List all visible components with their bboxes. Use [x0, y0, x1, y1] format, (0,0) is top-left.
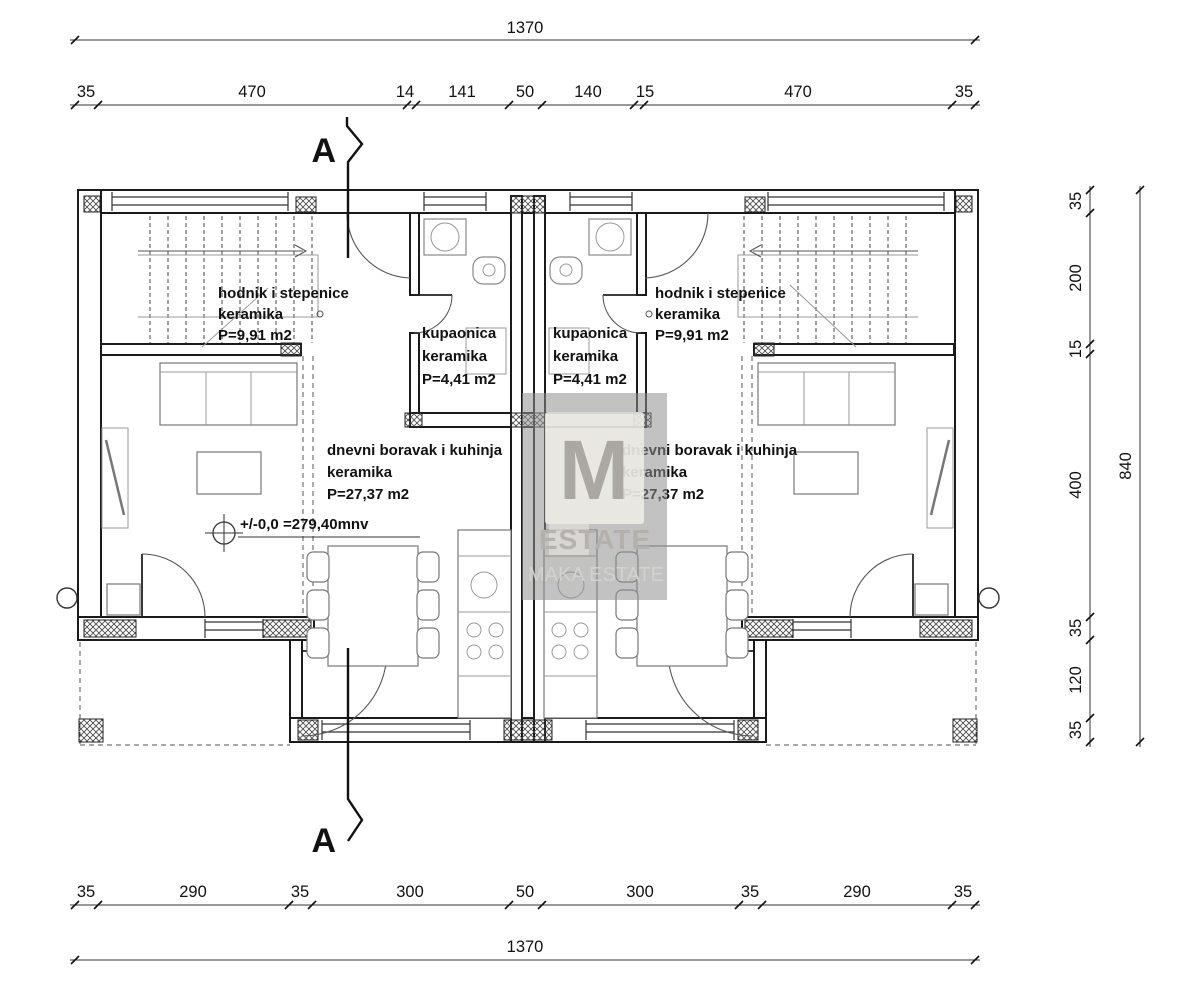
kitchen-counter: [458, 530, 511, 718]
floor-cabinet: [915, 584, 948, 615]
section-label-bottom: A: [311, 822, 336, 860]
coffee-table: [794, 452, 858, 494]
dim-top-seg-5: 140: [574, 83, 602, 101]
watermark: M ESTATE MAKA ESTATE: [522, 393, 667, 600]
floor-plan-drawing: 1370 35 470 14 141 50 140 15 470 35 35 2…: [0, 0, 1200, 999]
svg-text:P=4,41 m2: P=4,41 m2: [553, 371, 627, 388]
svg-text:hodnik i stepenice: hodnik i stepenice: [655, 285, 786, 302]
svg-text:P=9,91 m2: P=9,91 m2: [655, 327, 729, 344]
dim-bottom-seg-6: 35: [741, 883, 759, 901]
svg-text:keramika: keramika: [655, 306, 721, 323]
dim-bottom-segments: 35 290 35 300 50 300 35 290 35: [70, 883, 980, 909]
dim-top-total-label: 1370: [507, 19, 544, 37]
dim-bottom-seg-0: 35: [77, 883, 95, 901]
dim-top-seg-7: 470: [784, 83, 812, 101]
dim-right-seg-5: 120: [1067, 666, 1085, 694]
dim-right-seg-0: 35: [1067, 192, 1085, 210]
room-label-bathroom-right: kupaonica keramika P=4,41 m2: [553, 325, 628, 388]
dim-top-seg-3: 141: [448, 83, 476, 101]
svg-text:hodnik i stepenice: hodnik i stepenice: [218, 285, 349, 302]
dim-right-seg-3: 400: [1067, 471, 1085, 499]
svg-text:keramika: keramika: [422, 348, 488, 365]
washbasin-counter: [589, 219, 631, 255]
svg-text:dnevni boravak i kuhinja: dnevni boravak i kuhinja: [327, 442, 503, 459]
floor-cabinet: [107, 584, 140, 615]
dim-bottom-seg-3: 300: [396, 883, 424, 901]
kitchen-left: [458, 530, 511, 718]
watermark-monogram: M: [559, 423, 629, 517]
dim-top-seg-6: 15: [636, 83, 654, 101]
bath-left-wall-upper: [410, 213, 419, 295]
terrace-column-right: [953, 719, 977, 742]
toilet: [473, 257, 505, 284]
dining-table: [328, 546, 418, 666]
watermark-subbrand: MAKA ESTATE: [528, 564, 664, 586]
dim-top-seg-8: 35: [955, 83, 973, 101]
hall-wall-left: [101, 344, 301, 355]
dim-right-total-label: 840: [1117, 452, 1135, 480]
watermark-brand: ESTATE: [539, 524, 651, 555]
room-label-bathroom-left: kupaonica keramika P=4,41 m2: [422, 325, 497, 388]
porch-stub-right: [754, 640, 766, 718]
washbasin-counter: [424, 219, 466, 255]
bath-right-wall-upper: [637, 213, 646, 295]
floor-plan-page: 1370 35 470 14 141 50 140 15 470 35 35 2…: [0, 0, 1200, 999]
dim-top-seg-4: 50: [516, 83, 534, 101]
svg-text:P=4,41 m2: P=4,41 m2: [422, 371, 496, 388]
dim-bottom-seg-8: 35: [954, 883, 972, 901]
dim-bottom-seg-4: 50: [516, 883, 534, 901]
porch-stub-left: [290, 640, 302, 718]
dim-bottom-total-label: 1370: [507, 938, 544, 956]
svg-text:keramika: keramika: [553, 348, 619, 365]
dim-top-seg-0: 35: [77, 83, 95, 101]
svg-text:kupaonica: kupaonica: [553, 325, 628, 342]
svg-text:keramika: keramika: [218, 306, 284, 323]
dim-right-seg-1: 200: [1067, 264, 1085, 292]
section-label-top: A: [311, 132, 336, 170]
bath-left-wall-lower: [410, 333, 419, 413]
svg-text:keramika: keramika: [327, 464, 393, 481]
dim-right-seg-6: 35: [1067, 721, 1085, 739]
toilet: [550, 257, 582, 284]
dining-set-left: [307, 546, 439, 666]
dim-right-seg-4: 35: [1067, 619, 1085, 637]
dim-bottom-seg-1: 290: [179, 883, 207, 901]
party-wall-left-leaf: [511, 196, 522, 742]
coffee-table: [197, 452, 261, 494]
right-exterior-wall: [955, 190, 978, 640]
terrace-column-left: [79, 719, 103, 742]
dim-right-seg-2: 15: [1067, 340, 1085, 358]
dim-bottom-seg-5: 300: [626, 883, 654, 901]
level-note: +/-0,0 =279,40mnv: [240, 516, 369, 533]
svg-text:P=9,91 m2: P=9,91 m2: [218, 327, 292, 344]
dim-bottom-seg-2: 35: [291, 883, 309, 901]
dim-top-seg-1: 470: [238, 83, 266, 101]
svg-text:P=27,37 m2: P=27,37 m2: [327, 486, 409, 503]
left-exterior-wall: [78, 190, 101, 640]
svg-text:kupaonica: kupaonica: [422, 325, 497, 342]
dim-bottom-seg-7: 290: [843, 883, 871, 901]
dim-top-seg-2: 14: [396, 83, 414, 101]
